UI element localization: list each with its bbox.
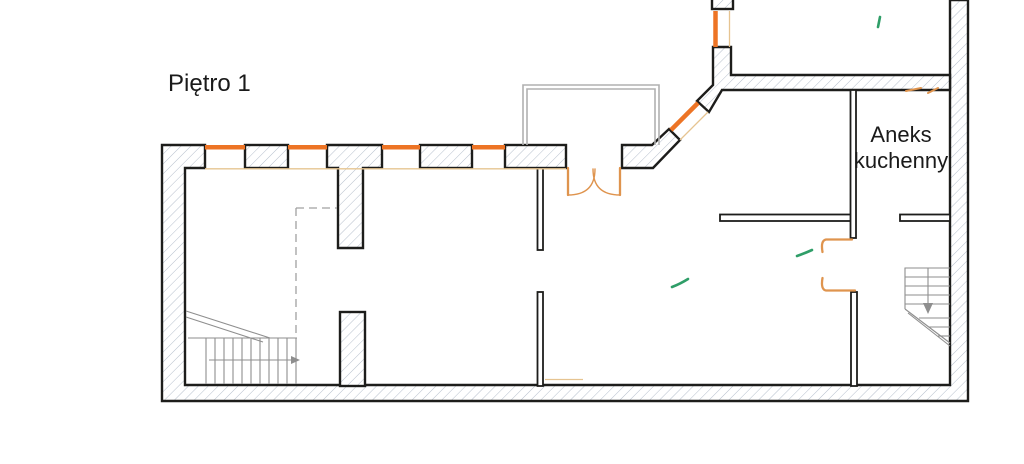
room-label-aneks-line1: Aneks bbox=[870, 122, 931, 147]
facade-pier-2 bbox=[245, 145, 288, 168]
green-mark-1 bbox=[878, 17, 880, 27]
stairs-left bbox=[186, 311, 300, 384]
outer-walls bbox=[162, 0, 968, 401]
french-door-right-arc bbox=[593, 169, 620, 195]
partition-right-lower bbox=[851, 292, 857, 386]
facade-pier-5 bbox=[505, 145, 566, 168]
partition-mid-lower bbox=[538, 292, 544, 386]
bay-wall-lower bbox=[622, 129, 680, 168]
outer-wall-ring bbox=[162, 0, 968, 401]
stairs-right-cut-line-1 bbox=[905, 309, 950, 343]
facade-pier-4 bbox=[420, 145, 472, 168]
partition-horizontal-left bbox=[720, 215, 852, 222]
balcony-outer-line bbox=[523, 85, 659, 145]
floor-plan-drawing: Piętro 1 Aneks kuchenny bbox=[0, 0, 1024, 464]
floor-plan: Piętro 1 Aneks kuchenny bbox=[0, 0, 1024, 464]
bay-top-pier bbox=[712, 0, 733, 9]
floor-title: Piętro 1 bbox=[168, 70, 251, 97]
partition-mid-upper bbox=[538, 168, 544, 250]
balcony-inner-line bbox=[527, 89, 655, 145]
stairs-left-cut-line-1 bbox=[186, 311, 270, 338]
stairs-left-treads bbox=[206, 338, 296, 384]
bay-wall-upper-and-topright-wall bbox=[697, 47, 950, 112]
doors bbox=[568, 88, 938, 291]
green-marks bbox=[672, 17, 880, 287]
interior-double-door bbox=[822, 240, 855, 291]
green-mark-2 bbox=[797, 250, 812, 256]
interior-door-upper-leaf bbox=[822, 240, 852, 253]
balcony bbox=[523, 85, 659, 145]
partition-horizontal-right bbox=[900, 215, 950, 222]
windows bbox=[205, 11, 730, 380]
dashed-outline bbox=[296, 208, 337, 338]
interior-stub-wall bbox=[340, 312, 365, 386]
french-door-left-arc bbox=[568, 169, 595, 195]
room-label-aneks-line2: kuchenny bbox=[854, 148, 948, 173]
green-mark-3 bbox=[672, 279, 688, 287]
stairs-right bbox=[905, 268, 950, 346]
stairs-right-arrow-head bbox=[923, 303, 933, 314]
facade-pier-3-with-stub bbox=[327, 145, 382, 248]
interior-door-lower-leaf bbox=[822, 278, 855, 291]
balcony-french-door bbox=[568, 168, 620, 195]
